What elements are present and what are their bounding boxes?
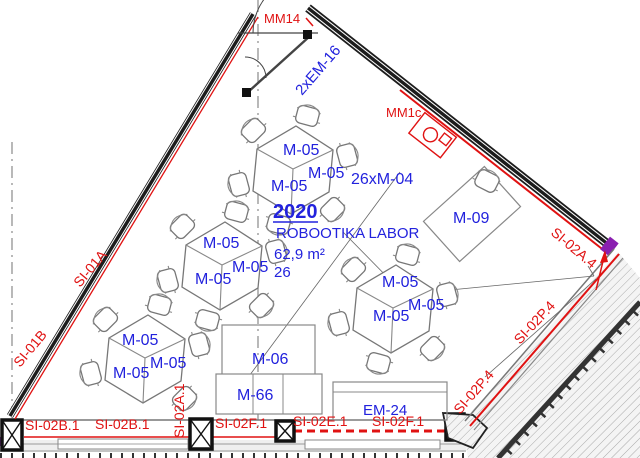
label-m05: M-05 [232, 259, 269, 276]
column [276, 421, 294, 441]
wall-code-si02b1-left: SI-02B.1 [25, 417, 80, 433]
column [190, 419, 212, 449]
table-group-c [77, 291, 214, 417]
wall-code-si02f1-left: SI-02F.1 [215, 415, 267, 431]
room-name: ROBOOTIKA LABOR [276, 225, 420, 242]
label-m05: M-05 [373, 308, 410, 325]
label-m05: M-05 [271, 178, 308, 195]
room-capacity: 26 [274, 264, 291, 281]
label-mm14: MM14 [264, 11, 300, 26]
floor-plan: 2xEM-16 26xM-04 M-05 M-05 M-05 M-05 M-05… [0, 0, 640, 458]
wall-code-si02b1-right: SI-02B.1 [95, 416, 150, 432]
label-m05: M-05 [195, 271, 232, 288]
label-m09: M-09 [453, 210, 490, 227]
label-m05: M-05 [408, 297, 445, 314]
mm14-tick [306, 18, 313, 26]
wall-code-si02e1: SI-02E.1 [293, 413, 348, 429]
label-m04: 26xM-04 [351, 171, 413, 188]
column [2, 420, 22, 450]
label-m05: M-05 [382, 274, 419, 291]
label-em16: 2xEM-16 [292, 42, 344, 98]
room-number: 2020 [273, 201, 318, 223]
label-m05: M-05 [308, 165, 345, 182]
label-m05: M-05 [122, 332, 159, 349]
wall-code-si02f1-right: SI-02F.1 [372, 413, 424, 429]
exterior-hatch-zone [462, 252, 640, 458]
label-m05: M-05 [283, 142, 320, 159]
label-m66: M-66 [237, 387, 274, 404]
label-m05: M-05 [203, 235, 240, 252]
label-m05: M-05 [150, 355, 187, 372]
label-mm1c: MM1c [386, 105, 422, 120]
wall-code-si02a1: SI-02A.1 [171, 383, 187, 438]
label-m06: M-06 [252, 351, 289, 368]
label-m05: M-05 [113, 365, 150, 382]
room-area: 62,9 m² [274, 246, 325, 263]
